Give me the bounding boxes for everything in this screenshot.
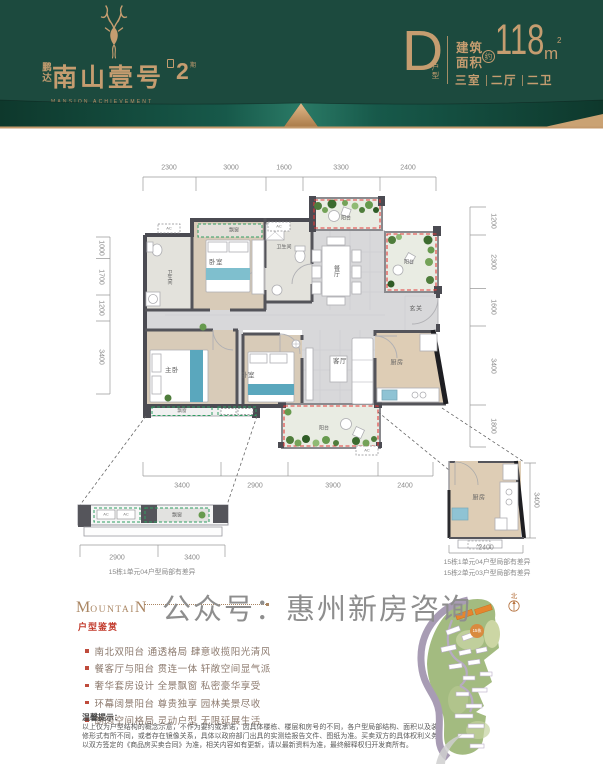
dim-detail-left-1: 2900 xyxy=(109,555,125,562)
dim-bottom-2: 2900 xyxy=(247,483,263,490)
dim-right-3: 1600 xyxy=(490,299,497,315)
dim-left-4: 3400 xyxy=(98,349,105,365)
dim-top-5: 2400 xyxy=(400,165,416,172)
dim-right-5: 1800 xyxy=(490,418,497,434)
dim-left-1: 1000 xyxy=(98,240,105,256)
detail-left-caption: 15栋1单元04户型局部有差异 xyxy=(109,566,196,576)
feature-item: 餐客厅与阳台 贯连一体 轩敞空间显气派 xyxy=(85,661,271,675)
feature-text: 环幕阔景阳台 尊贵独享 园林美景尽收 xyxy=(95,696,261,710)
north-label: 北 xyxy=(511,590,518,600)
area-label: 建筑 面积 xyxy=(456,41,483,71)
ac-label: AC xyxy=(276,224,282,229)
dim-detail-right-side: 3400 xyxy=(533,492,540,508)
room-balcony-bottom: 阳台 xyxy=(319,425,329,432)
deer-head xyxy=(110,27,118,45)
ac-label: AC xyxy=(476,543,482,548)
ac-label: AC xyxy=(166,226,172,231)
unit-type-suffix: 户型 xyxy=(430,63,441,80)
site-building-badge: 15栋 xyxy=(470,624,484,638)
dim-detail-left-2: 3400 xyxy=(184,555,200,562)
area-unit-sup: 2 xyxy=(557,36,561,45)
poster: 鹏达 南山壹号 2 期 MANSION ACHIEVEMENT D 户型 建筑 … xyxy=(0,0,603,764)
header-ribbon xyxy=(0,90,603,132)
floor-plan xyxy=(55,145,548,590)
header-banner: 鹏达 南山壹号 2 期 MANSION ACHIEVEMENT D 户型 建筑 … xyxy=(0,0,603,128)
brand-phase-number: 2 xyxy=(176,58,189,85)
room-bathroom-top: 卫生间 xyxy=(276,244,291,251)
feature-item: 奢华套房设计 全景飘窗 私密豪华享受 xyxy=(85,678,271,692)
ac-label: AC xyxy=(103,512,109,517)
room-living: 客厅 xyxy=(333,355,347,365)
features-title-m: M xyxy=(76,599,90,616)
dim-right-4: 3400 xyxy=(490,358,497,374)
brand-seal-icon xyxy=(167,59,174,68)
dim-top-4: 3300 xyxy=(333,165,349,172)
ac-label: AC xyxy=(123,512,129,517)
dim-left-2: 1700 xyxy=(98,269,105,285)
spec-baths: 二卫 xyxy=(527,72,553,88)
room-kitchen: 厨房 xyxy=(390,358,403,367)
dim-bottom-3: 3900 xyxy=(325,483,341,490)
detail-right-caption-2: 15栋2单元03户型局部有差异 xyxy=(444,567,531,577)
spec-halls: 二厅 xyxy=(491,72,517,88)
disclaimer-body: 以上仅为户型结构的概念示意，不作为要约或承诺，因具体楼栋、楼层和房号的不同，各户… xyxy=(82,723,438,751)
detail-kitchen-label: 厨房 xyxy=(472,493,485,502)
bullet-icon xyxy=(85,649,89,653)
room-bathroom-left: 卫生间 xyxy=(167,270,174,285)
dim-top-3: 1600 xyxy=(276,165,292,172)
room-bay-window-bottom: 飘窗 xyxy=(177,408,186,414)
room-bedroom-2: 卧室 xyxy=(241,369,255,379)
unit-divider xyxy=(447,36,448,84)
layout-spec: 三室 二厅 二卫 xyxy=(455,72,553,88)
kitchen-detail xyxy=(449,461,524,549)
feature-item: 环幕阔景阳台 尊贵独享 园林美景尽收 xyxy=(85,696,271,710)
bullet-icon xyxy=(85,684,89,688)
bay-window-detail xyxy=(78,505,228,536)
deer-logo-icon xyxy=(94,5,134,59)
feature-text: 南北双阳台 通透格局 肆意收揽阳光清风 xyxy=(95,644,271,658)
brand-prefix: 鹏达 xyxy=(38,62,52,83)
dim-left-3: 1200 xyxy=(98,300,105,316)
room-bedroom-top: 卧室 xyxy=(209,256,223,266)
room-bay-window-top: 飘窗 xyxy=(229,227,239,234)
dim-top-1: 2300 xyxy=(161,165,177,172)
bullet-icon xyxy=(85,666,89,670)
features-title-n: N xyxy=(135,599,147,616)
feature-item: 南北双阳台 通透格局 肆意收揽阳光清风 xyxy=(85,644,271,658)
detail-right-caption-1: 15栋1单元04户型局部有差异 xyxy=(444,556,531,566)
room-balcony-top: 阳台 xyxy=(341,215,351,222)
dim-right-2: 2300 xyxy=(490,254,497,270)
feature-text: 餐客厅与阳台 贯连一体 轩敞空间显气派 xyxy=(95,661,271,675)
spec-separator xyxy=(522,75,523,86)
watermark-text: 公众号：惠州新房咨询 xyxy=(162,586,472,628)
features-title: MOUNTAIN xyxy=(76,599,146,617)
north-arrow-icon xyxy=(509,601,519,611)
spec-rooms: 三室 xyxy=(455,72,481,88)
room-entry: 玄关 xyxy=(409,304,422,313)
room-dining: 餐厅 xyxy=(332,265,341,277)
features-subtitle: 户型鉴赏 xyxy=(78,620,118,633)
area-value: 118 xyxy=(495,16,544,65)
brand-name: 南山壹号 xyxy=(52,58,164,94)
dim-top-2: 3000 xyxy=(223,165,239,172)
dim-right-1: 1200 xyxy=(490,213,497,229)
dim-bottom-4: 2400 xyxy=(397,483,413,490)
area-unit: m xyxy=(544,44,558,64)
detail-bay-window-label: 飘窗 xyxy=(172,512,182,519)
room-balcony-right: 阳台 xyxy=(404,259,414,266)
dim-bottom-1: 3400 xyxy=(174,483,190,490)
area-label-line2: 面积 xyxy=(456,56,483,71)
spec-separator xyxy=(486,75,487,86)
bullet-icon xyxy=(85,701,89,705)
ac-label: AC xyxy=(364,448,370,453)
brand-phase-suffix: 期 xyxy=(190,60,196,69)
approx-circle: 约 xyxy=(482,50,495,63)
area-label-line1: 建筑 xyxy=(456,41,483,56)
feature-text: 奢华套房设计 全景飘窗 私密豪华享受 xyxy=(95,678,261,692)
disclaimer-title: 温馨提示： xyxy=(82,712,122,723)
room-master-bedroom: 主卧 xyxy=(165,364,179,374)
features-title-mid: OUNTAI xyxy=(90,605,135,615)
